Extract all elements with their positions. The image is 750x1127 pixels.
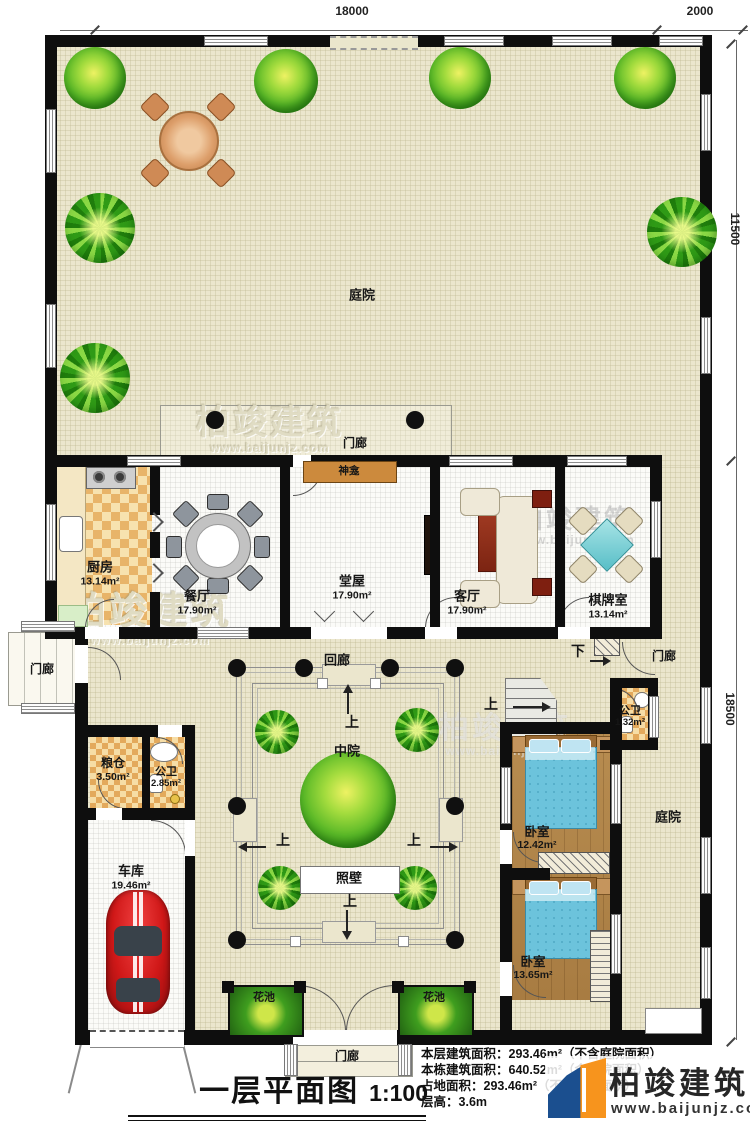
logo: 柏竣建筑 www.baijunjz.com	[545, 1056, 750, 1124]
rail-post	[317, 678, 328, 689]
room-area: 19.46m²	[111, 879, 150, 891]
window	[450, 457, 512, 465]
room-area: 13.14m²	[588, 608, 627, 620]
pillow	[529, 881, 559, 895]
floor-plan: 18000 2000 11500 18500 庭院 门廊	[0, 0, 750, 1127]
wall	[185, 725, 195, 820]
pillow	[561, 881, 591, 895]
room-area: 13.14m²	[80, 575, 119, 587]
sofa-seat	[460, 488, 500, 516]
room-name: 客厅	[447, 590, 486, 605]
up-label: 上	[343, 893, 357, 909]
step-arrow-head	[238, 842, 247, 852]
court-palm	[255, 710, 299, 754]
rail-post	[398, 936, 409, 947]
window	[502, 768, 510, 823]
up-label: 上	[484, 696, 498, 712]
window	[660, 37, 702, 45]
door-opening	[85, 627, 119, 639]
step-arrow	[430, 846, 450, 848]
wall	[555, 467, 565, 627]
courtyard-top-label: 庭院	[349, 289, 375, 304]
window	[445, 37, 503, 45]
window	[650, 697, 658, 737]
dim-tick	[726, 39, 736, 49]
bedroom2-label: 卧室 13.65m²	[513, 955, 552, 981]
wall	[500, 722, 610, 734]
dim-top-main: 18000	[335, 4, 368, 18]
title-underline	[128, 1115, 426, 1121]
palm-tree	[60, 343, 130, 413]
window	[47, 305, 55, 367]
dim-tick	[726, 456, 736, 466]
step-arrow	[346, 910, 348, 932]
window	[702, 838, 710, 893]
tree	[614, 47, 676, 109]
window	[612, 765, 620, 823]
up-label: 上	[345, 714, 359, 730]
door-opening	[500, 830, 512, 864]
door-opening	[311, 627, 387, 639]
logo-name: 柏竣建筑	[609, 1058, 749, 1103]
chess-label: 棋牌室 13.14m²	[588, 594, 627, 621]
dining-chair	[254, 536, 270, 558]
driveway-line	[68, 1043, 83, 1094]
column	[295, 659, 313, 677]
porch-step	[22, 704, 74, 713]
plan-title: 一层平面图	[199, 1066, 359, 1110]
wall	[75, 627, 88, 1045]
court-palm	[258, 866, 302, 910]
kitchen-sink	[59, 516, 83, 552]
gate-dashed	[330, 36, 418, 50]
dim-line-top	[60, 30, 748, 31]
porch-right-label: 门廊	[652, 650, 676, 664]
court-palm	[395, 708, 439, 752]
logo-icon	[548, 1058, 606, 1118]
window	[702, 688, 710, 743]
tree	[429, 47, 491, 109]
palm-tree	[65, 193, 135, 263]
wall	[142, 737, 150, 808]
room-name: 粮仓	[96, 757, 129, 771]
window	[568, 457, 626, 465]
column	[381, 659, 399, 677]
up-label: 上	[276, 832, 290, 848]
column	[446, 931, 464, 949]
hall-label: 堂屋 17.90m²	[332, 575, 371, 602]
threshold	[198, 628, 248, 638]
flower-bed-post	[464, 981, 476, 993]
room-name: 车库	[111, 865, 150, 880]
column	[228, 797, 246, 815]
dining-chair	[166, 536, 182, 558]
rail-post	[370, 678, 381, 689]
flower-bed-label: 花池	[423, 992, 445, 1005]
step-arrow	[347, 690, 349, 714]
dim-line-right	[736, 40, 737, 1040]
plan-scale: 1:100	[369, 1080, 428, 1107]
door-opening	[75, 645, 88, 683]
flower-bed-post	[222, 981, 234, 993]
bath-small-label: 公卫 1.32m²	[615, 705, 645, 729]
dining-chair	[207, 494, 229, 510]
living-label: 客厅 17.90m²	[447, 590, 486, 617]
window	[702, 95, 710, 150]
window	[652, 502, 660, 557]
logo-icon-blue	[548, 1066, 582, 1118]
room-name: 餐厅	[177, 590, 216, 605]
column	[228, 659, 246, 677]
door-opening	[558, 627, 590, 639]
garage-label: 车库 19.46m²	[111, 865, 150, 892]
door-opening	[158, 725, 182, 737]
window	[47, 110, 55, 172]
pillow	[529, 739, 559, 753]
bedroom1-label: 卧室 12.42m²	[517, 825, 556, 851]
room-area: 1.32m²	[615, 718, 645, 729]
dim-top-right: 2000	[687, 4, 714, 18]
room-name: 公卫	[615, 705, 645, 718]
dim-right-lower: 18500	[723, 679, 737, 739]
window	[702, 948, 710, 998]
garage-door-opening	[90, 1030, 184, 1048]
up-label: 上	[407, 832, 421, 848]
courtyard-right-label: 庭院	[655, 811, 681, 826]
down-arrow	[590, 660, 604, 662]
room-area: 13.65m²	[513, 969, 552, 981]
pillow	[561, 739, 591, 753]
palm-tree	[647, 197, 717, 267]
side-table	[532, 578, 552, 596]
wall	[700, 35, 712, 1045]
kitchen-label: 厨房 13.14m²	[80, 561, 119, 588]
room-area: 17.90m²	[447, 604, 486, 616]
screen-wall-label: 照壁	[336, 872, 362, 887]
wall	[150, 467, 160, 515]
stove-burner	[93, 471, 105, 483]
nightstand	[596, 878, 611, 895]
down-arrow-head	[603, 656, 611, 666]
stove-burner	[114, 471, 126, 483]
floor-drain	[170, 794, 180, 804]
car	[106, 890, 170, 1014]
room-name: 公卫	[151, 766, 181, 779]
window	[128, 457, 180, 465]
wall	[150, 592, 160, 627]
step-arrow-head	[449, 842, 458, 852]
stair-arrow-head	[542, 702, 551, 712]
porch-top-label: 门廊	[343, 437, 367, 451]
rail-post	[290, 936, 301, 947]
room-area: 2.85m²	[151, 779, 181, 790]
flower-bed-post	[392, 981, 404, 993]
room-name: 厨房	[80, 561, 119, 576]
room-name: 棋牌室	[588, 594, 627, 609]
step-arrow-head	[342, 931, 352, 940]
wall	[150, 532, 160, 558]
bath-main-label: 公卫 2.85m²	[151, 766, 181, 790]
stair-arrow	[513, 706, 543, 708]
window	[702, 318, 710, 373]
window	[612, 915, 620, 973]
column	[206, 411, 224, 429]
room-area: 3.50m²	[96, 771, 129, 783]
door-opening	[425, 627, 457, 639]
down-label: 下	[571, 643, 585, 659]
granary-label: 粮仓 3.50m²	[96, 757, 129, 783]
tree	[254, 49, 318, 113]
mid-court-label: 中院	[334, 745, 360, 760]
wall	[430, 467, 440, 627]
column	[228, 931, 246, 949]
door-opening	[96, 808, 122, 820]
car-rear-window	[116, 978, 160, 1002]
window	[553, 37, 611, 45]
ladder-hatch	[590, 930, 612, 1002]
door-opening	[185, 820, 195, 856]
dim-right-upper: 11500	[728, 199, 742, 259]
title-block: 一层平面图 1:100	[128, 1066, 428, 1121]
garden-table	[159, 111, 219, 171]
wall	[280, 467, 290, 627]
porch-left-label: 门廊	[30, 663, 54, 677]
wall	[610, 678, 622, 1032]
dining-table-top	[196, 524, 240, 568]
logo-website: www.baijunjz.com	[611, 1100, 750, 1117]
room-name: 卧室	[517, 825, 556, 839]
room-name: 堂屋	[332, 575, 371, 590]
shrine-label: 神龛	[339, 465, 360, 477]
column	[406, 411, 424, 429]
step-arrow	[246, 846, 266, 848]
wall	[600, 740, 658, 750]
room-area: 12.42m²	[517, 839, 556, 851]
tree	[64, 47, 126, 109]
room-name: 卧室	[513, 955, 552, 969]
door-opening	[500, 962, 512, 996]
logo-icon-slit	[582, 1068, 586, 1112]
dining-label: 餐厅 17.90m²	[177, 590, 216, 617]
side-table	[532, 490, 552, 508]
column	[446, 659, 464, 677]
porch-bottom-label: 门廊	[335, 1050, 359, 1064]
room-area: 17.90m²	[332, 589, 371, 601]
window	[47, 505, 55, 580]
flower-bed-post	[294, 981, 306, 993]
flower-bed-label: 花池	[253, 992, 275, 1005]
column	[446, 797, 464, 815]
porch-step	[22, 622, 74, 631]
room-area: 17.90m²	[177, 604, 216, 616]
niche	[645, 1008, 702, 1034]
wall	[45, 35, 57, 467]
court-tree	[300, 752, 396, 848]
entrance-opening	[293, 1030, 397, 1045]
car-windshield	[114, 926, 162, 956]
step-arrow-head	[343, 684, 353, 693]
wall	[500, 868, 550, 880]
corridor-label: 回廊	[324, 654, 350, 669]
window	[205, 37, 267, 45]
